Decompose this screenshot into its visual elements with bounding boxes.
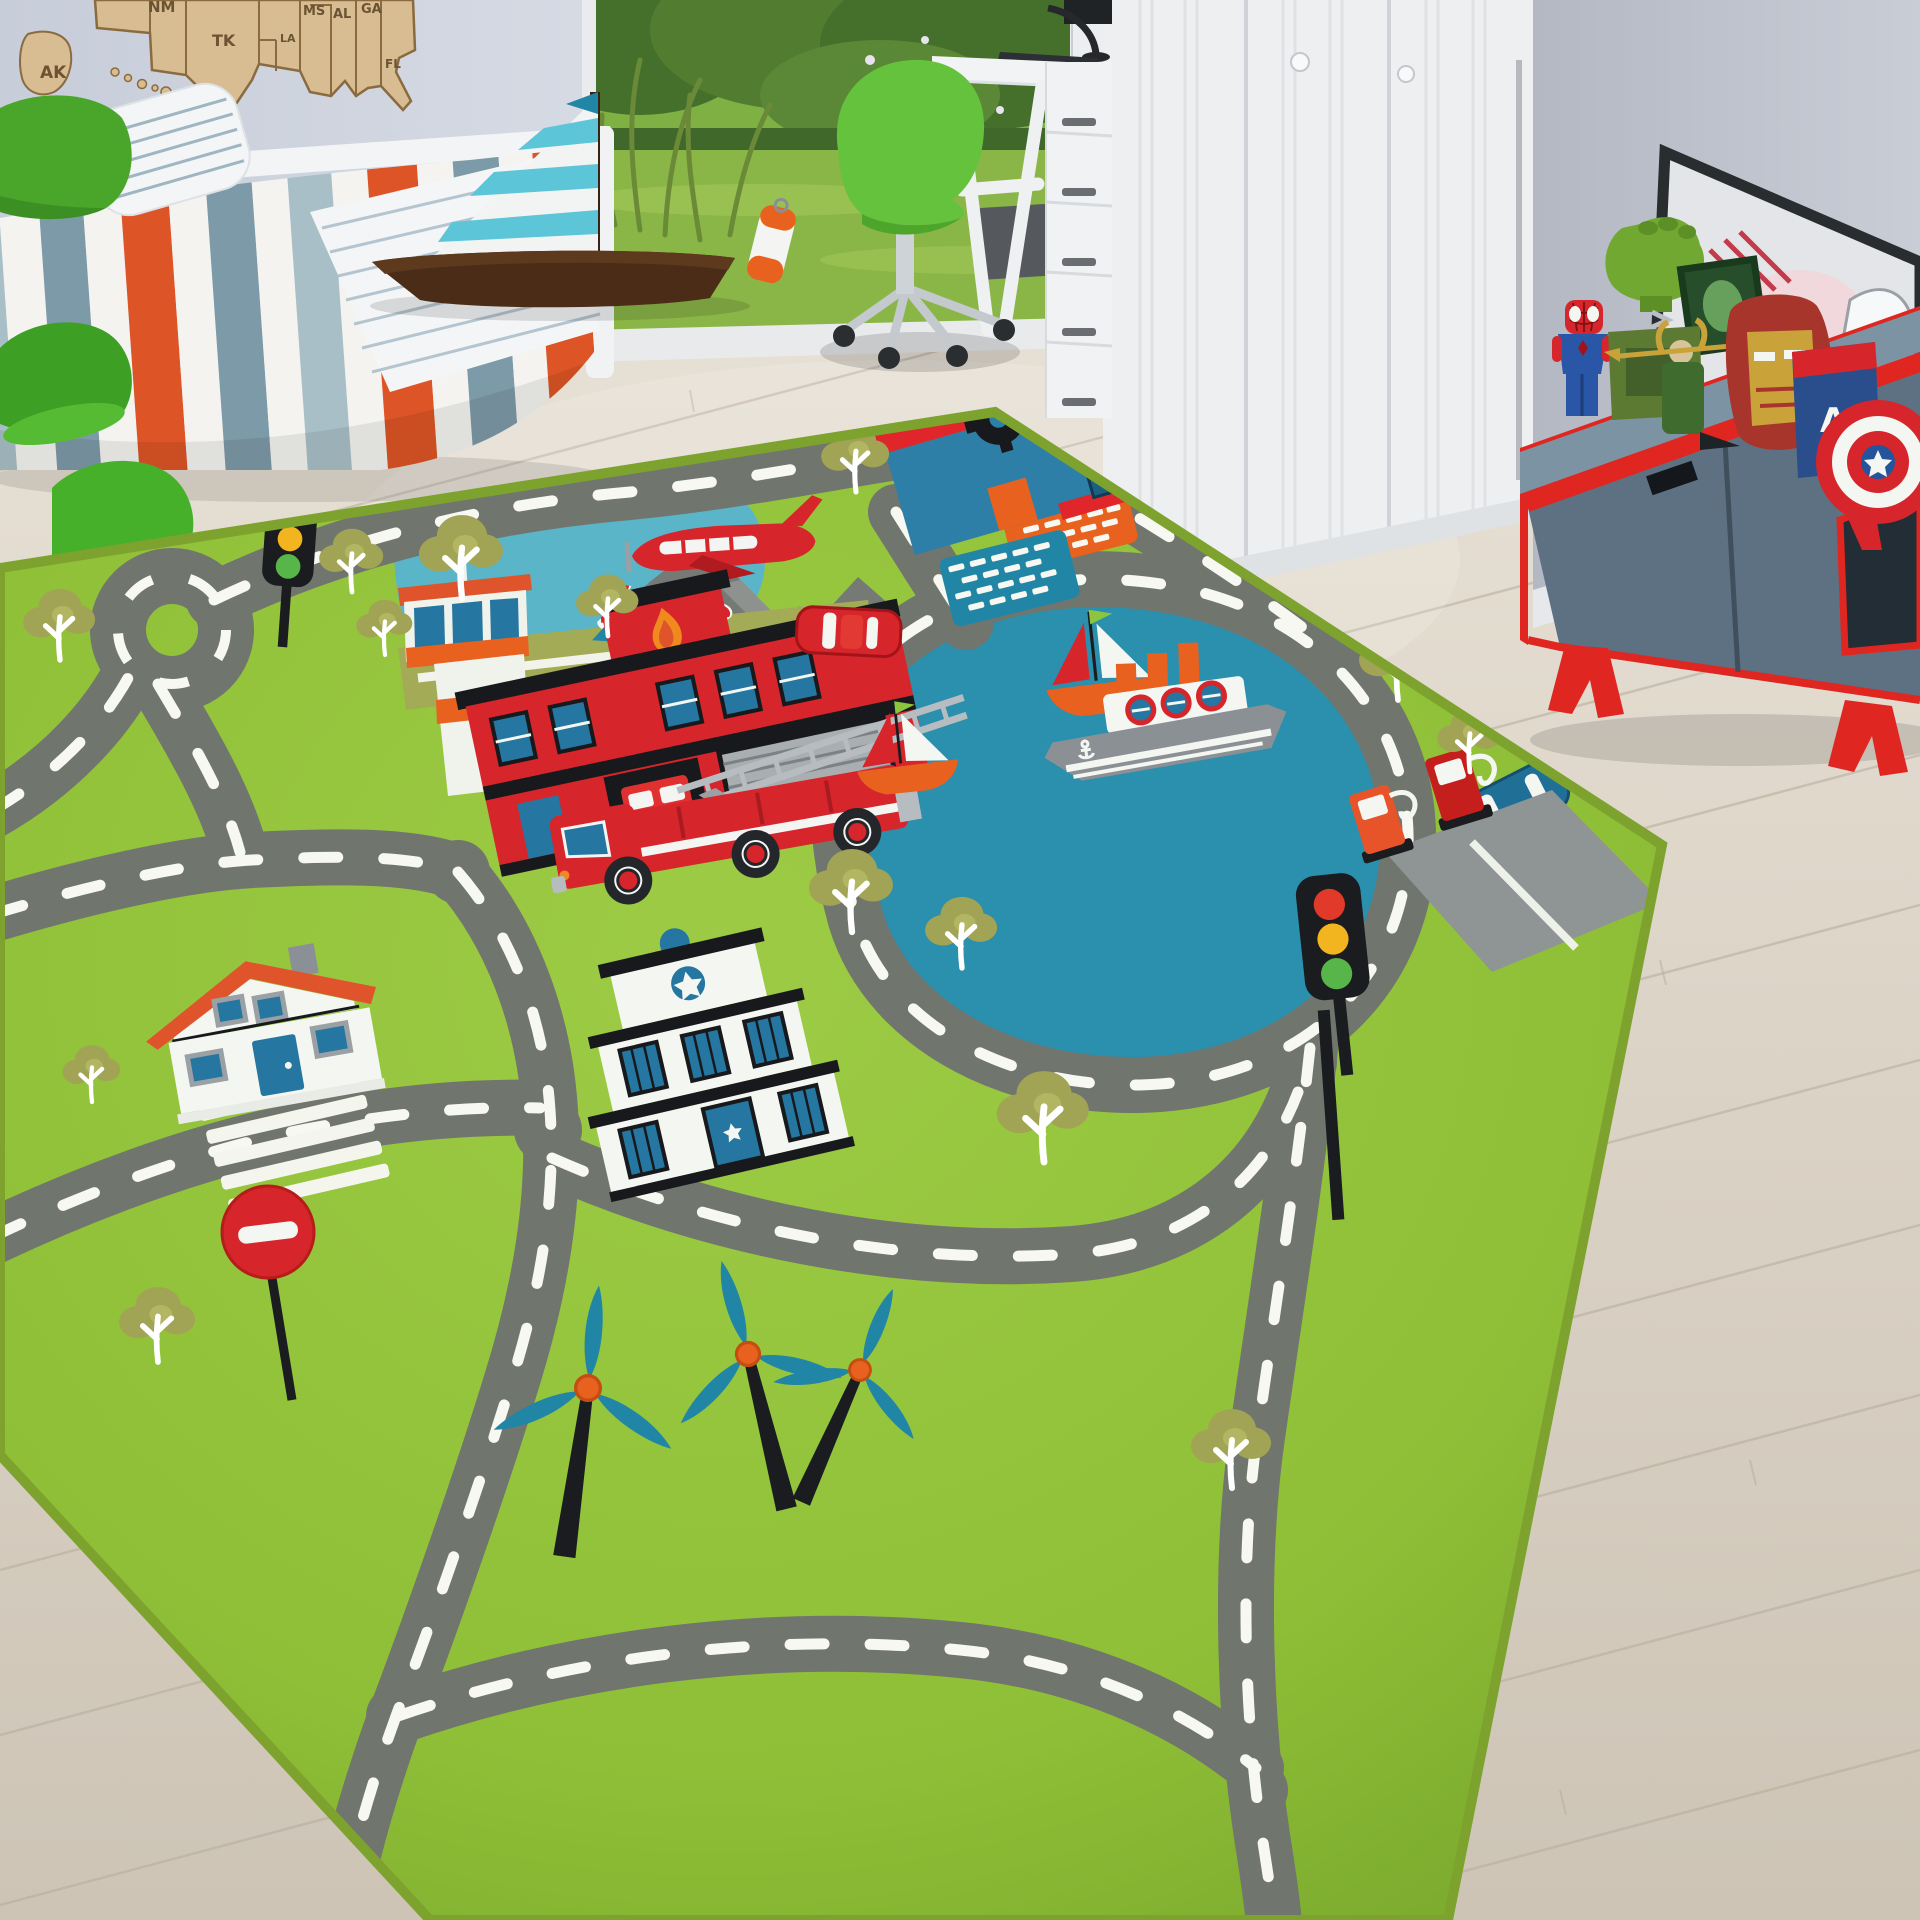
wardrobe-knob-1 <box>1291 53 1309 71</box>
desk-drawer-unit <box>1046 62 1112 418</box>
green-pillow <box>0 95 132 211</box>
red-car <box>796 606 902 657</box>
wardrobe-knob-2 <box>1398 66 1414 82</box>
wardrobe-side-gap <box>1516 60 1522 480</box>
map-label-la: LA <box>280 32 296 45</box>
scene-canvas: AK NM TK LA MS AL GA FL <box>0 0 1920 1920</box>
map-label-fl: FL <box>385 57 401 71</box>
map-label-ak: AK <box>40 63 67 83</box>
map-label-ga: GA <box>361 2 382 17</box>
kids-room-scene: AK NM TK LA MS AL GA FL <box>0 0 1920 1920</box>
map-label-nm: NM <box>148 0 175 16</box>
map-label-ms: MS <box>303 4 325 19</box>
map-label-al: AL <box>333 7 351 22</box>
map-label-tk: TK <box>212 31 236 50</box>
